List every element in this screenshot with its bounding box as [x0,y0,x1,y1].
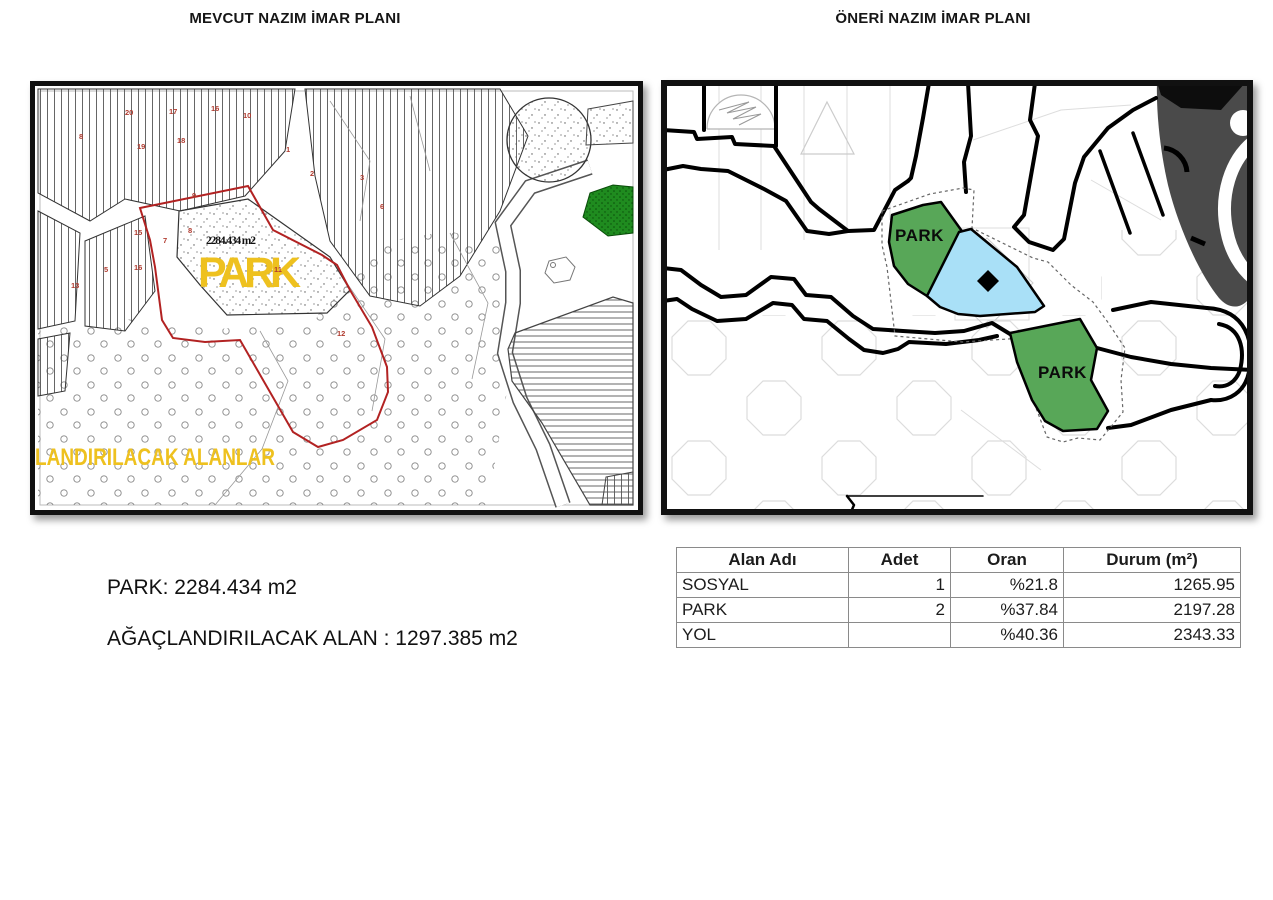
afforestation-label: LANDIRILACAK ALANLAR [35,444,275,471]
svg-text:11: 11 [274,265,282,274]
svg-text:5: 5 [104,265,108,274]
cell-alan: PARK [677,598,849,623]
header-alan-adi: Alan Adı [677,548,849,573]
park-area-text: PARK: 2284.434 m2 [107,576,518,600]
svg-text:13: 13 [71,281,79,290]
summary-text: PARK: 2284.434 m2 AĞAÇLANDIRILACAK ALAN … [107,576,518,678]
svg-text:8: 8 [188,226,192,235]
svg-text:9: 9 [192,191,196,200]
table-row: YOL %40.36 2343.33 [677,623,1241,648]
cell-alan: YOL [677,623,849,648]
header-durum: Durum (m²) [1064,548,1241,573]
cell-adet: 2 [849,598,951,623]
svg-text:1: 1 [286,145,290,154]
svg-text:8: 8 [79,132,83,141]
corner-hatch-area [602,472,633,505]
cell-durum: 1265.95 [1064,573,1241,598]
cell-durum: 2197.28 [1064,598,1241,623]
park-area-value: 2284.434 m2 [206,235,256,247]
current-plan-map: 2284.434 m2 PARK LANDIRILACAK ALANLAR 20… [30,81,643,515]
cell-alan: SOSYAL [677,573,849,598]
park1-label: PARK [895,226,944,245]
table-header-row: Alan Adı Adet Oran Durum (m²) [677,548,1241,573]
stipple-circle [507,98,591,182]
svg-text:7: 7 [163,236,167,245]
cell-adet: 1 [849,573,951,598]
svg-text:10: 10 [243,111,251,120]
svg-text:12: 12 [337,329,345,338]
svg-text:6: 6 [380,202,384,211]
table-row: PARK 2 %37.84 2197.28 [677,598,1241,623]
svg-text:16: 16 [134,263,142,272]
stipple-band [586,101,633,145]
area-table: Alan Adı Adet Oran Durum (m²) SOSYAL 1 %… [676,547,1241,648]
svg-text:18: 18 [177,136,185,145]
park-label: PARK [198,249,303,297]
cell-oran: %37.84 [951,598,1064,623]
svg-text:19: 19 [137,142,145,151]
proposed-plan-map: PARK PARK [661,80,1253,515]
left-map-title: MEVCUT NAZIM İMAR PLANI [145,10,445,27]
cell-durum: 2343.33 [1064,623,1241,648]
table-row: SOSYAL 1 %21.8 1265.95 [677,573,1241,598]
cell-oran: %21.8 [951,573,1064,598]
svg-text:2: 2 [310,169,314,178]
svg-text:15: 15 [134,228,142,237]
page-canvas: MEVCUT NAZIM İMAR PLANI ÖNERİ NAZIM İMAR… [0,0,1273,900]
svg-text:17: 17 [169,107,177,116]
park2-label: PARK [1038,363,1087,382]
svg-text:16: 16 [211,104,219,113]
header-adet: Adet [849,548,951,573]
cell-oran: %40.36 [951,623,1064,648]
svg-text:3: 3 [360,173,364,182]
cell-adet [849,623,951,648]
afforestation-area-text: AĞAÇLANDIRILACAK ALAN : 1297.385 m2 [107,627,518,651]
header-oran: Oran [951,548,1064,573]
svg-text:20: 20 [125,108,133,117]
right-map-title: ÖNERİ NAZIM İMAR PLANI [783,10,1083,27]
